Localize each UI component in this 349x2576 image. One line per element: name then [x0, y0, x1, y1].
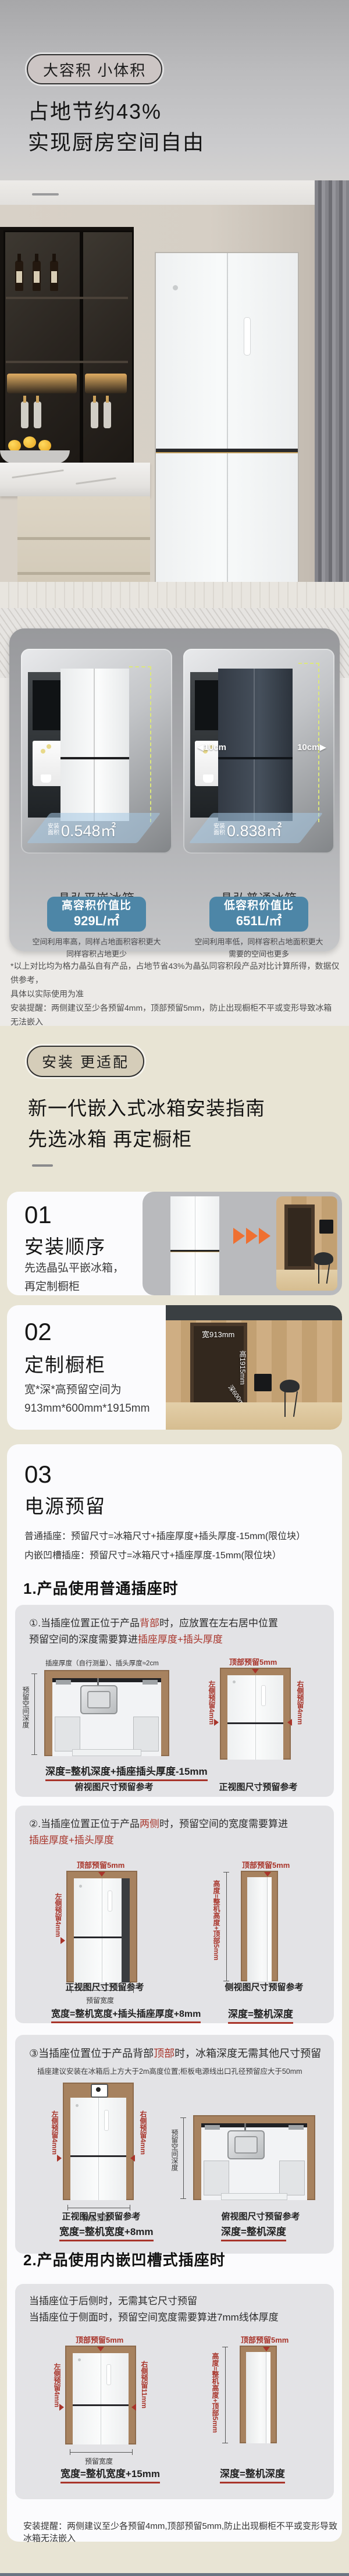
- height-bracket: [222, 2347, 228, 2443]
- arrow-icon: [246, 1228, 258, 1244]
- step1-image-panel: [143, 1192, 342, 1295]
- install-reminder: 安装提醒：两侧建议至少各预留4mm,顶部预留5mm,防止出现橱柜不平或变形导致冰…: [23, 2520, 342, 2544]
- compare-card: 安装面积 0.548㎡ ◀10cm: [9, 628, 340, 951]
- top-reserve-label: 顶部预留5mm: [77, 1859, 124, 1870]
- left-reserve-label: 左侧预留4mm: [207, 1680, 217, 1725]
- fridge-control-panel: [244, 317, 251, 356]
- socket-box: [80, 1685, 117, 1714]
- top-socket-icon: [91, 2084, 108, 2098]
- arrow-icon: [233, 1228, 245, 1244]
- step1-desc: 先选晶弘平嵌冰箱， 再定制橱柜: [24, 1259, 124, 1296]
- step1-card: 01 安装顺序 先选晶弘平嵌冰箱， 再定制橱柜: [7, 1192, 342, 1295]
- island-countertop: [0, 463, 150, 496]
- case1-text: ①.当插座位置正位于产品背部时，应放置在左右居中位置 预留空间的深度需要算进插座…: [29, 1615, 278, 1648]
- hero-badge: 大容积 小体积: [27, 54, 162, 84]
- wine-bottle-lit: [104, 401, 111, 428]
- wine-bottle: [50, 261, 58, 291]
- height-bracket: [223, 1872, 229, 1981]
- step1-title: 安装顺序: [24, 1231, 106, 1259]
- lemon: [23, 436, 36, 448]
- frontview-caption: 正视图尺寸预留参考: [52, 1981, 157, 1993]
- install-title-line2: 先选冰箱 再定橱柜: [28, 1124, 192, 1152]
- marble-vein: [12, 470, 64, 478]
- dark-fridge: [218, 669, 293, 821]
- step2-number: 02: [24, 1318, 52, 1346]
- compare-note: *以上对比均为格力晶弘自有产品，占地节省43%为晶弘同容积段产品对比计算所得，数…: [10, 959, 340, 1029]
- depth-bracket: [31, 1673, 37, 1755]
- compare-desc-right: 空间利用率低，同样容积占地面积更大 需要的空间也更多: [177, 936, 340, 960]
- step1-number: 01: [24, 1201, 52, 1229]
- case2-sideview-diagram: [241, 1871, 278, 1981]
- area-label-line1: 安装: [213, 823, 225, 830]
- wine-cabinet-glass-right: [81, 230, 134, 470]
- fruit-bowl: [0, 436, 70, 463]
- area-value: 0.838㎡: [227, 818, 282, 841]
- case1-topview-note: 插座厚度（自行测量）、插头厚度≈2cm: [45, 1658, 159, 1668]
- left-reserve-label: 左侧预留4mm: [50, 2110, 60, 2155]
- fridge-door-split: [227, 253, 228, 608]
- orchid-flower: [47, 744, 51, 749]
- case3-topview-diagram: [193, 2115, 315, 2200]
- compare-panel-flat-embedded: 安装面积 0.548㎡: [21, 649, 172, 854]
- badge-title: 高容积价值比: [62, 899, 131, 913]
- section1-heading: 1.产品使用普通插座时: [23, 1577, 179, 1598]
- fridge-handle-band: [156, 449, 298, 453]
- fridge-door-split: [254, 669, 255, 821]
- height-formula-label: 高度=整机高度+顶部5mm: [211, 2353, 220, 2433]
- lemon: [38, 440, 51, 452]
- width-bracket: [70, 2449, 133, 2455]
- recess-width-label: 宽913mm: [202, 1328, 234, 1339]
- sec2-depth-formula: 深度=整机深度: [220, 2465, 285, 2483]
- kitchen-floor: [0, 582, 349, 608]
- island-shelf: [17, 537, 150, 540]
- gap-dimension-left: ◀10cm: [197, 742, 226, 752]
- frontview-caption: 正视图尺寸预留参考: [212, 1781, 305, 1793]
- recessed-socket-card: 当插座位于后侧时，无需其它尺寸预留 当插座位于侧面时，预留空间宽度需要算进7mm…: [15, 2284, 334, 2499]
- cabinet-recess: [284, 1204, 315, 1270]
- section2-heading: 2.产品使用内嵌凹槽式插座时: [23, 2248, 226, 2270]
- badge-value: 651L/㎡: [236, 913, 282, 929]
- install-section: 安装 更适配 新一代嵌入式冰箱安装指南 先选冰箱 再定橱柜 01 安装顺序 先选…: [0, 1026, 349, 2576]
- depth-space-label: 预留空间深度: [21, 1686, 31, 1728]
- step1-fridge-image: [170, 1196, 219, 1295]
- socket-box: [227, 2130, 265, 2159]
- install-badge: 安装 更适配: [27, 1046, 144, 1077]
- case3-depth-formula: 深度=整机深度: [221, 2223, 286, 2241]
- step2-title: 定制橱柜: [24, 1349, 106, 1377]
- case3-text: ③当插座位置位于产品背部顶部时，冰箱深度无需其他尺寸预留: [29, 2045, 321, 2062]
- area-value: 0.548㎡: [61, 818, 116, 841]
- hero-section: 大容积 小体积 占地节约43% 实现厨房空间自由: [0, 0, 349, 608]
- width-bracket-label: 预留宽度: [85, 2456, 113, 2466]
- flower-pot: [41, 774, 51, 783]
- case3-width-formula: 宽度=整机宽度+8mm: [59, 2223, 154, 2241]
- wine-bottle: [15, 261, 23, 291]
- dashed-volume-outline: [129, 666, 151, 822]
- case2-text: ②.当插座位置正位于产品两侧时，预留空间的宽度需要算进 插座厚度+插头厚度: [29, 1816, 288, 1849]
- lemon: [8, 440, 21, 452]
- fridge-handle-band: [218, 757, 293, 759]
- shelf-light: [7, 374, 77, 393]
- hero-kitchen-photo: [0, 180, 349, 608]
- topview-caption: 俯视图尺寸预留参考: [50, 1781, 178, 1793]
- wine-bottle-lit: [34, 401, 41, 428]
- oven-appliance: [319, 1220, 333, 1234]
- window-curtain: [315, 180, 349, 608]
- left-reserve-label: 左侧预留4mm: [52, 2363, 62, 2407]
- height-formula-label: 高度=整机高度+顶部5mm: [212, 1880, 222, 1960]
- case2-depth-formula: 深度=整机深度: [228, 2006, 293, 2024]
- white-fridge: [60, 669, 129, 821]
- fridge-door-split: [94, 669, 95, 821]
- oven-appliance: [254, 1374, 272, 1391]
- install-title-line1: 新一代嵌入式冰箱安装指南: [28, 1093, 265, 1121]
- case2-frontview-diagram: [66, 1871, 137, 1982]
- hero-title-line2: 实现厨房空间自由: [28, 126, 205, 156]
- area-callout: 安装面积 0.548㎡: [48, 818, 116, 841]
- hero-badge-label: 大容积 小体积: [43, 59, 146, 80]
- step2-desc: 宽*深*高预留空间为 913mm*600mm*1915mm: [24, 1381, 149, 1418]
- marble-vein: [76, 477, 116, 485]
- ceiling-light-slot: [32, 193, 59, 196]
- depth-space-label: 预留空间深度: [170, 2129, 180, 2171]
- top-reserve-label: 顶部预留5mm: [229, 1656, 277, 1667]
- step2-kitchen-image: 宽913mm 高1915mm 深600mm: [166, 1305, 342, 1430]
- stool: [314, 1252, 333, 1265]
- divider-dash: [32, 1164, 53, 1167]
- case1-card: ①.当插座位置正位于产品背部时，应放置在左右居中位置 预留空间的深度需要算进插座…: [15, 1605, 334, 1797]
- arrow-icon: [259, 1228, 270, 1244]
- embedded-fridge: [156, 253, 298, 608]
- orchid-flower: [41, 749, 45, 754]
- next-section-edge: [0, 2573, 349, 2576]
- gap-dimension-right: 10cm▶: [297, 742, 326, 752]
- step3-number: 03: [24, 1461, 52, 1488]
- area-label-line1: 安装: [48, 823, 59, 830]
- depth-bracket: [180, 2117, 186, 2199]
- note-line2: 具体以实际使用为准: [10, 987, 340, 1001]
- stool: [280, 1380, 300, 1392]
- recess-height-label: 高1915mm: [238, 1351, 248, 1385]
- topview-caption: 俯视图尺寸预留参考: [202, 2210, 319, 2222]
- compare-desc-left: 空间利用率高，同样占地面积容积更大 同样容积占地更少: [15, 936, 178, 960]
- note-line1: *以上对比均为格力晶弘自有产品，占地节省43%为晶弘同容积段产品对比计算所得，数…: [10, 959, 340, 987]
- sideview-caption: 侧视图尺寸预留参考: [212, 1981, 316, 1993]
- value-badge-left: 高容积价值比 929L/㎡: [47, 897, 146, 932]
- right-reserve-label: 右侧预留4mm: [138, 2110, 148, 2155]
- step1-cabinet-image: [276, 1196, 337, 1291]
- wine-shelf: [6, 361, 128, 363]
- wine-bottle: [33, 261, 41, 291]
- wine-shelf: [6, 297, 128, 299]
- promo-page: 大容积 小体积 占地节约43% 实现厨房空间自由: [0, 0, 349, 2576]
- sec2-width-formula: 宽度=整机宽度+15mm: [60, 2465, 160, 2483]
- top-reserve-label: 顶部预留5mm: [76, 2334, 123, 2345]
- wine-bottle-lit: [91, 401, 98, 428]
- sec2-sideview-diagram: [240, 2346, 277, 2443]
- fridge-handle-band: [60, 757, 129, 759]
- flower-pot: [203, 774, 213, 783]
- left-reserve-label: 左侧预留4mm: [54, 1893, 63, 1937]
- compare-section: 安装面积 0.548㎡ ◀10cm: [0, 608, 349, 1026]
- value-badge-right: 低容积价值比 651L/㎡: [209, 897, 308, 932]
- upper-dark-cabinet: [166, 1305, 342, 1320]
- wine-bottle-lit: [21, 401, 29, 428]
- area-label-line2: 面积: [48, 830, 59, 836]
- case1-frontview-diagram: [220, 1668, 291, 1760]
- right-reserve-label: 右侧预留4mm: [295, 1680, 305, 1725]
- area-label-line2: 面积: [213, 830, 225, 836]
- bowl: [0, 450, 70, 463]
- case2-width-formula: 宽度=整机宽度+插头插座厚度+8mm: [51, 2006, 201, 2023]
- hero-title-line1: 占地节约43%: [28, 95, 162, 125]
- side-socket-strip: [122, 1878, 130, 1982]
- top-reserve-label: 顶部预留5mm: [242, 1859, 290, 1870]
- island-shelf: [17, 572, 150, 575]
- compare-panel-regular: ◀10cm 10cm▶ 安装面积 0.838㎡: [183, 649, 334, 854]
- install-badge-label: 安装 更适配: [42, 1051, 129, 1072]
- step2-card: 02 定制橱柜 宽*深*高预留空间为 913mm*600mm*1915mm 宽9…: [7, 1305, 342, 1430]
- shelf-light: [85, 374, 127, 393]
- fridge-logo: [173, 285, 178, 290]
- socket-formula-intro: 普通插座：预留尺寸=冰箱尺寸+插座厚度+插头厚度-15mm(限位块） 内嵌凹槽插…: [24, 1527, 305, 1565]
- case3-note: 插座建议安装在冰箱后上方大于2m高度位置;柜板电源线出口孔径预留应大于50mm: [37, 2065, 302, 2076]
- badge-title: 低容积价值比: [224, 899, 294, 913]
- frontview-caption: 正视图尺寸预留参考: [49, 2210, 154, 2222]
- badge-value: 929L/㎡: [74, 913, 119, 929]
- note-line3: 安装提醒：两侧建议至少各预留4mm，顶部预留5mm，防止出现橱柜不平或变形导致冰…: [10, 1001, 340, 1029]
- case1-depth-formula: 深度=整机深度+插座插头厚度-15mm: [45, 1763, 208, 1781]
- area-callout: 安装面积 0.838㎡: [213, 818, 282, 841]
- case3-frontview-diagram: [63, 2083, 134, 2200]
- wine-cabinet: [0, 227, 134, 470]
- step3-title: 电源预留: [24, 1491, 106, 1519]
- step3-card: 03 电源预留 普通插座：预留尺寸=冰箱尺寸+插座厚度+插头厚度-15mm(限位…: [7, 1444, 342, 2542]
- right-reserve-label: 右侧预留11mm: [140, 2361, 149, 2408]
- top-reserve-label: 顶部预留5mm: [241, 2334, 289, 2345]
- sec2-frontview-diagram: [65, 2346, 136, 2444]
- case1-topview-diagram: [44, 1670, 169, 1756]
- recessed-socket-text: 当插座位于后侧时，无需其它尺寸预留 当插座位于侧面时，预留空间宽度需要算进7mm…: [29, 2293, 279, 2326]
- width-bracket-label: 预留宽度: [86, 1995, 114, 2005]
